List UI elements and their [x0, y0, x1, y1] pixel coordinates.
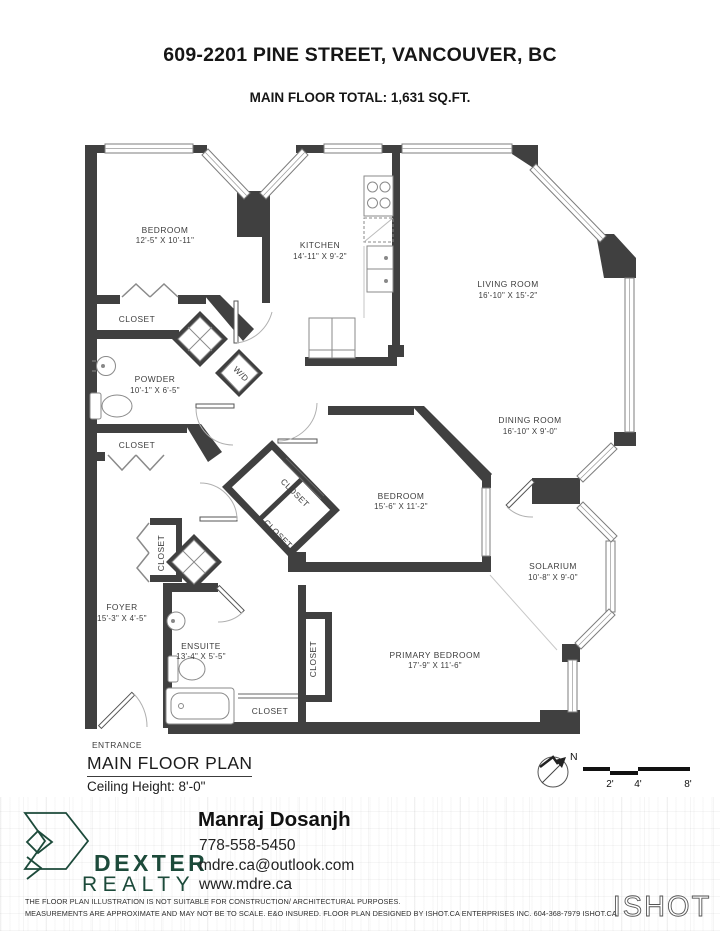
ishot-logo: ISHOT: [610, 887, 714, 927]
ensuite-sink: [167, 612, 185, 630]
label-solarium-dims: 10'-8" X 9'-0": [528, 573, 578, 582]
scale-bar: 2' 4' 8': [583, 767, 692, 790]
label-bedroom2: BEDROOM: [378, 491, 425, 501]
label-dining-room-dims: 16'-10" X 9'-0": [503, 427, 557, 436]
label-living-room-dims: 16'-10" X 15'-2": [478, 291, 537, 300]
label-solarium: SOLARIUM: [529, 561, 577, 571]
floorplan-page: 609-2201 PINE STREET, VANCOUVER, BC MAIN…: [0, 0, 720, 931]
label-closet-5: CLOSET: [156, 535, 166, 572]
label-closet-7: CLOSET: [252, 706, 289, 716]
solarium-boundary-line: [490, 575, 557, 650]
scale-tick-4: 4': [634, 779, 642, 790]
label-kitchen-dims: 14'-11" X 9'-2": [293, 252, 347, 261]
fridge: [309, 318, 355, 358]
plan-title-block: MAIN FLOOR PLAN Ceiling Height: 8'-0": [87, 753, 252, 794]
label-closet-2: CLOSET: [119, 440, 156, 450]
kitchen-door-leaf: [234, 301, 238, 343]
scale-tick-8: 8': [684, 779, 692, 790]
label-powder-dims: 10'-1" X 6'-5": [130, 386, 180, 395]
bathtub: [166, 688, 234, 724]
disclaimer-line-1: THE FLOOR PLAN ILLUSTRATION IS NOT SUITA…: [25, 897, 401, 906]
north-label: N: [570, 751, 578, 763]
disclaimer-line-2: MEASUREMENTS ARE APPROXIMATE AND MAY NOT…: [25, 909, 617, 918]
label-powder: POWDER: [135, 374, 176, 384]
scale-tick-2: 2': [606, 779, 614, 790]
label-primary-bedroom: PRIMARY BEDROOM: [390, 650, 481, 660]
label-dining-room: DINING ROOM: [498, 415, 561, 425]
label-foyer: FOYER: [106, 602, 137, 612]
label-ensuite-dims: 13'-4" X 5'-5": [176, 652, 226, 661]
label-bedroom1-dims: 12'-5" X 10'-11": [136, 236, 194, 245]
ceiling-height: Ceiling Height: 8'-0": [87, 779, 252, 794]
label-ensuite: ENSUITE: [181, 641, 221, 651]
north-compass: N: [538, 751, 578, 787]
label-closet-6: CLOSET: [308, 641, 318, 678]
entrance-door-leaf: [99, 692, 135, 728]
agent-website[interactable]: www.mdre.ca: [199, 876, 292, 894]
powder-toilet: [90, 393, 132, 419]
label-bedroom1: BEDROOM: [142, 225, 189, 235]
agent-phone[interactable]: 778-558-5450: [199, 837, 296, 855]
footer: DEXTER REALTY Manraj Dosanjh 778-558-545…: [0, 797, 720, 931]
hall-door-leaf: [196, 404, 234, 408]
kitchen-cabinets: [364, 246, 393, 318]
ishot-logo-text: ISHOT: [613, 891, 712, 923]
shaft-column-1: [178, 317, 222, 361]
plan-name: MAIN FLOOR PLAN: [87, 753, 252, 777]
label-living-room: LIVING ROOM: [477, 279, 538, 289]
solarium-door-leaf: [506, 480, 534, 508]
brand-realty: REALTY: [82, 873, 195, 897]
agent-email[interactable]: mdre.ca@outlook.com: [199, 857, 354, 875]
label-primary-bedroom-dims: 17'-9" X 11'-6": [408, 661, 462, 670]
stove: [364, 176, 393, 216]
floor-plan-drawing: BEDROOM 12'-5" X 10'-11" KITCHEN 14'-11"…: [0, 0, 720, 795]
agent-name: Manraj Dosanjh: [198, 808, 351, 832]
label-foyer-dims: 15'-3" X 4'-5": [97, 614, 147, 623]
label-kitchen: KITCHEN: [300, 240, 340, 250]
label-closet-1: CLOSET: [119, 314, 156, 324]
ensuite-door-leaf: [217, 586, 245, 614]
label-entrance: ENTRANCE: [92, 740, 142, 750]
foyer-door-leaf: [200, 517, 237, 521]
label-bedroom2-dims: 15'-6" X 11'-2": [374, 502, 428, 511]
